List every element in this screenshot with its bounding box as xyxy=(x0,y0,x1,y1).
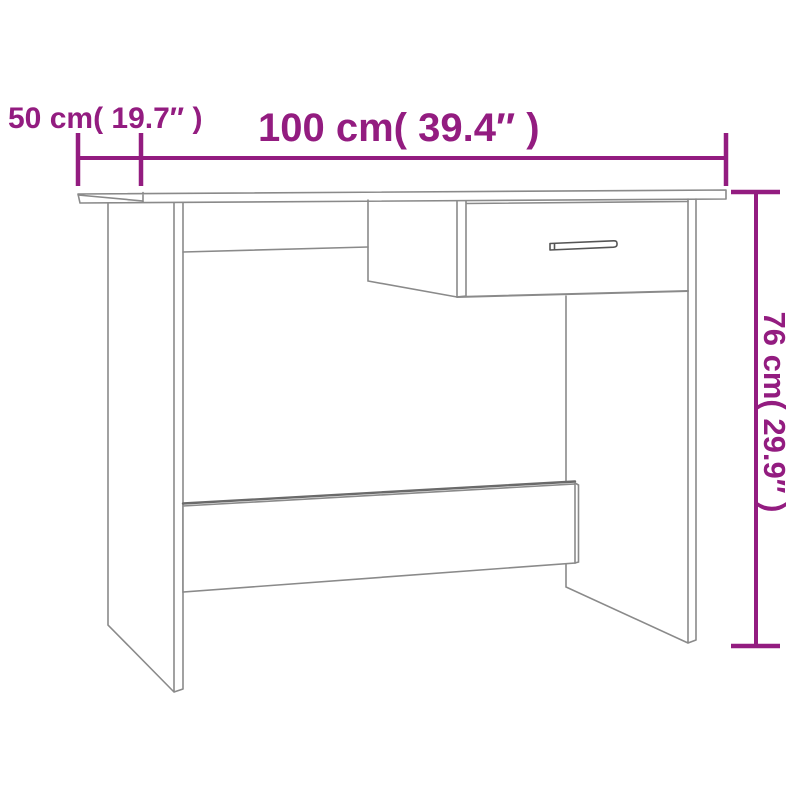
product-dimension-diagram: 50 cm( 19.7″ ) 100 cm( 39.4″ ) 76 cm( 29… xyxy=(0,0,800,800)
height-dimension-label: 76 cm( 29.9″ ) xyxy=(757,312,792,513)
drawer-handle-bar xyxy=(550,241,617,250)
drawer-box-outline xyxy=(368,200,688,297)
drawer-handle xyxy=(550,241,617,250)
width-dimension-label: 100 cm( 39.4″ ) xyxy=(258,106,540,150)
back-rail-edge xyxy=(183,247,368,252)
right-leg-panel xyxy=(566,199,696,643)
modesty-panel xyxy=(183,482,579,593)
drawer-bottom-edge xyxy=(457,291,688,297)
left-leg-outline xyxy=(108,203,183,692)
left-leg-panel xyxy=(108,203,183,692)
depth-dimension-label: 50 cm( 19.7″ ) xyxy=(8,102,202,135)
desk-top-edges xyxy=(78,190,726,203)
desk-line-art xyxy=(78,190,726,692)
drawer-unit xyxy=(368,200,688,297)
desk-top xyxy=(78,190,726,203)
right-leg-outline xyxy=(566,199,696,643)
desk-dimension-drawing: 50 cm( 19.7″ ) 100 cm( 39.4″ ) 76 cm( 29… xyxy=(0,0,800,800)
